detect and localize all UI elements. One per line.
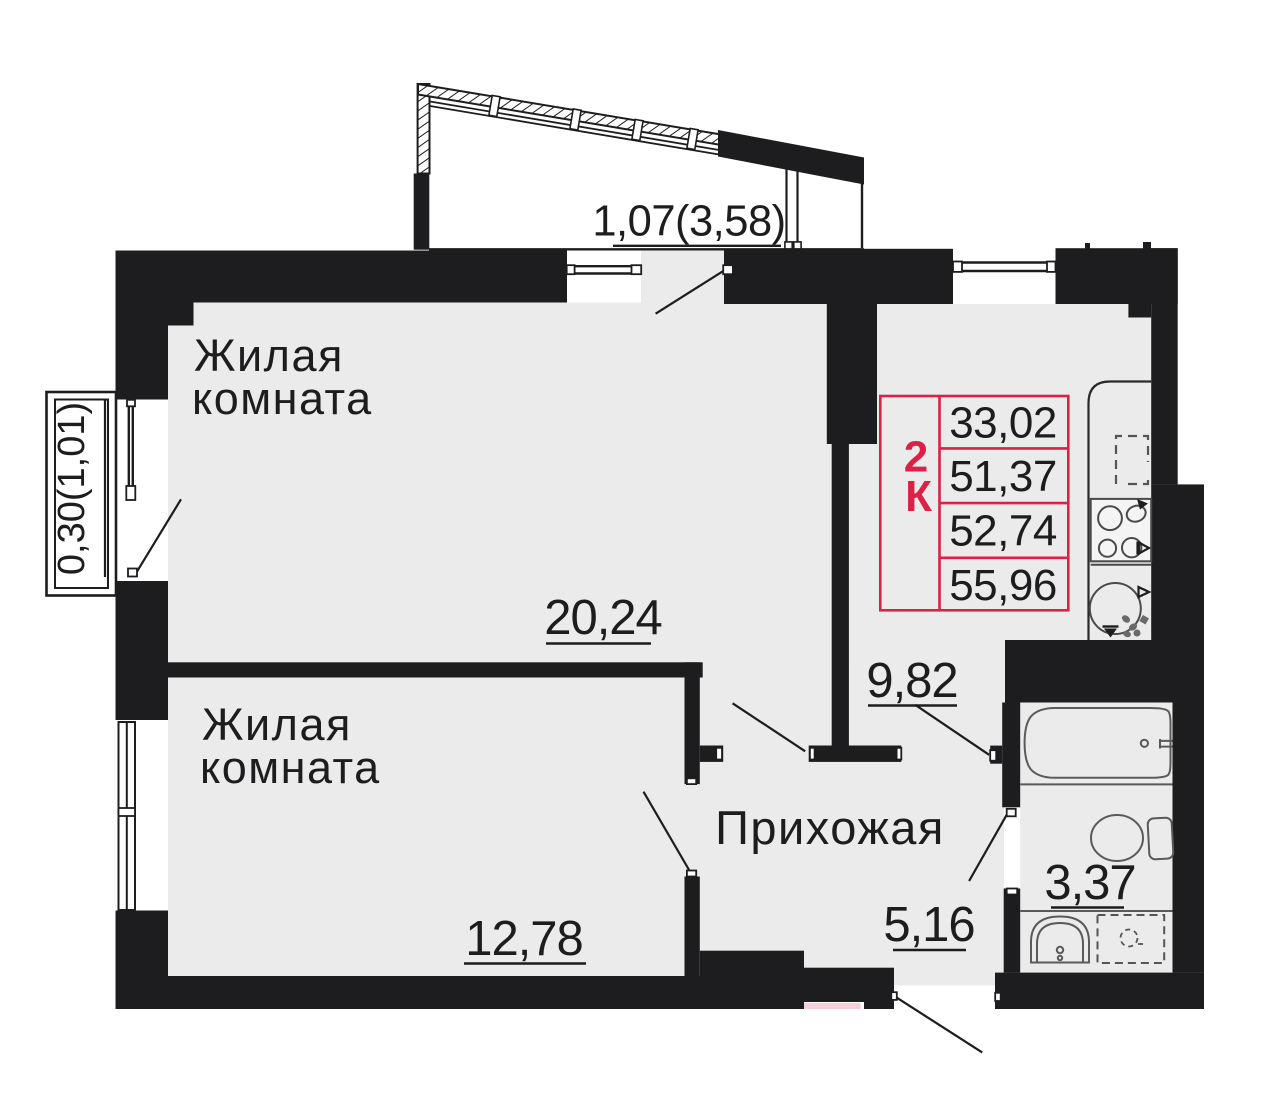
svg-text:3,37: 3,37 bbox=[1044, 856, 1135, 910]
svg-text:комната: комната bbox=[200, 742, 381, 793]
svg-text:5,16: 5,16 bbox=[883, 898, 974, 952]
svg-text:33,02: 33,02 bbox=[949, 399, 1057, 448]
svg-text:1,07(3,58): 1,07(3,58) bbox=[592, 198, 785, 246]
svg-text:12,78: 12,78 bbox=[465, 912, 583, 966]
svg-text:51,37: 51,37 bbox=[949, 452, 1057, 501]
svg-text:К: К bbox=[905, 472, 932, 521]
svg-text:52,74: 52,74 bbox=[949, 507, 1057, 556]
svg-text:20,24: 20,24 bbox=[544, 591, 662, 645]
svg-text:Прихожая: Прихожая bbox=[715, 801, 945, 854]
svg-text:9,82: 9,82 bbox=[866, 654, 957, 708]
svg-text:55,96: 55,96 bbox=[949, 561, 1057, 610]
svg-text:0,30(1,01): 0,30(1,01) bbox=[51, 402, 93, 575]
svg-text:комната: комната bbox=[192, 373, 373, 424]
